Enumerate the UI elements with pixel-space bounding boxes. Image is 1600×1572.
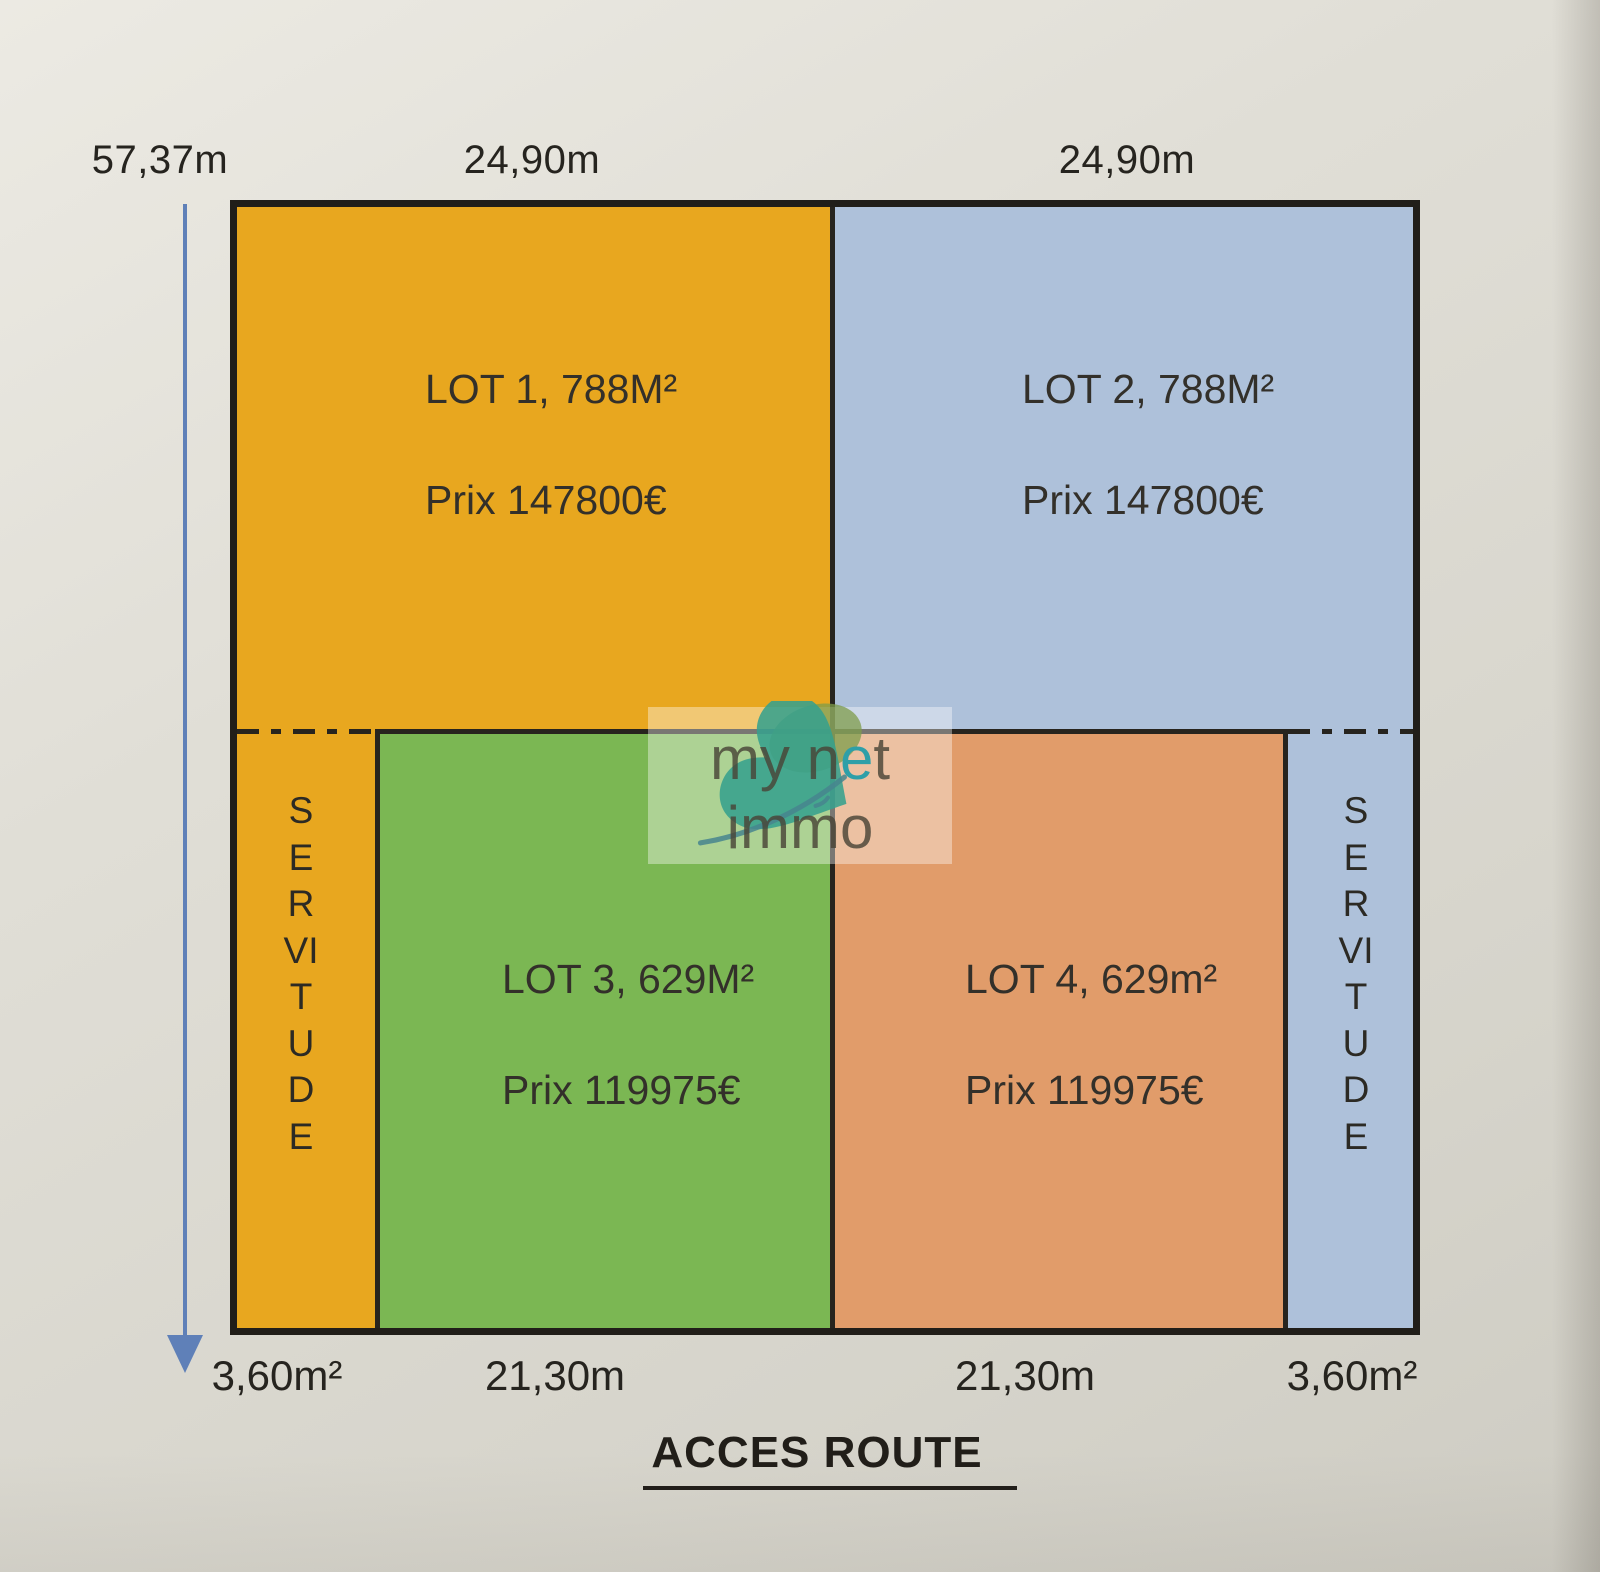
lot-plan-photo: 57,37m 24,90m 24,90m LOT 1, 788M² Prix 1… (0, 0, 1600, 1572)
lot3-left-border-line (375, 729, 380, 1328)
lot-1-label: LOT 1, 788M² Prix 147800€ (425, 366, 677, 524)
lot-4-title: LOT 4, 629m² (965, 956, 1217, 1003)
brand-accent-letter: e (840, 725, 873, 792)
watermark-brand-text: my net immo (642, 724, 958, 862)
height-dimension-arrow-line (183, 204, 187, 1335)
lot-2-price: Prix 147800€ (1022, 477, 1274, 524)
lot-3-label: LOT 3, 629M² Prix 119975€ (502, 956, 754, 1114)
access-route-wrap: ACCES ROUTE (620, 1428, 1040, 1490)
dimension-total-height-label: 57,37m (60, 138, 260, 183)
agency-watermark: my net immo (648, 707, 952, 864)
dimension-servitude-left-label: 3,60m² (167, 1352, 387, 1400)
dimension-lot2-width-label: 24,90m (1027, 138, 1227, 183)
lot-4-price: Prix 119975€ (965, 1067, 1217, 1114)
servitude-right-label: SERVITUDE (1332, 788, 1380, 1160)
lot-2-label: LOT 2, 788M² Prix 147800€ (1022, 366, 1274, 524)
dimension-lot1-width-label: 24,90m (432, 138, 632, 183)
lot-1-price: Prix 147800€ (425, 477, 677, 524)
servitude-left-label: SERVITUDE (277, 788, 325, 1160)
lot-1-title: LOT 1, 788M² (425, 366, 677, 413)
access-route-label: ACCES ROUTE (643, 1428, 1016, 1490)
lot-4-label: LOT 4, 629m² Prix 119975€ (965, 956, 1217, 1114)
servitude-right-dashed-line (1288, 729, 1413, 734)
lot-3-price: Prix 119975€ (502, 1067, 754, 1114)
lot-3-title: LOT 3, 629M² (502, 956, 754, 1003)
dimension-servitude-right-label: 3,60m² (1242, 1352, 1462, 1400)
dimension-lot4-width-label: 21,30m (915, 1352, 1135, 1400)
dimension-lot3-width-label: 21,30m (445, 1352, 665, 1400)
lot4-right-border-line (1283, 729, 1288, 1328)
servitude-left-dashed-line (237, 729, 375, 734)
lot-2-title: LOT 2, 788M² (1022, 366, 1274, 413)
brand-part1: my n (710, 725, 840, 792)
